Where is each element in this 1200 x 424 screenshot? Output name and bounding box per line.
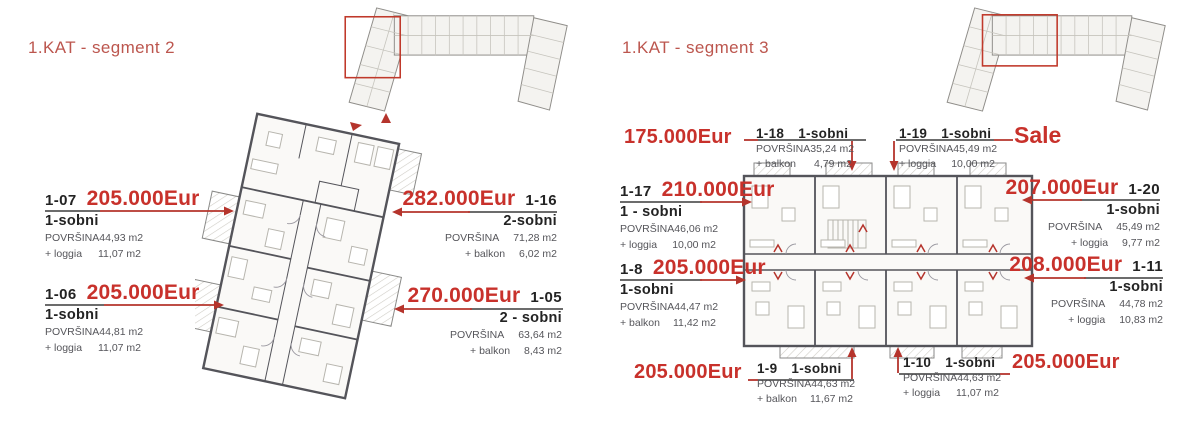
segment3-title: 1.KAT - segment 3 [622, 38, 769, 58]
balcony-bottom-1 [780, 346, 854, 358]
apartment-card-1-06: 1-06 205.000Eur 1-sobni POVRŠINA44,81 m2… [45, 281, 200, 355]
area-label: POVRŠINA [620, 301, 674, 314]
apartment-id: 1-06 [45, 286, 77, 303]
price-1-9: 205.000Eur [634, 361, 742, 384]
apartment-type: 1-sobni [791, 361, 841, 376]
apartment-id: 1-19 [899, 126, 927, 141]
extra-label: + loggia [903, 387, 940, 400]
apartment-id: 1-07 [45, 192, 77, 209]
extra-value: 11,07 m2 [956, 387, 999, 400]
apartment-id: 1-17 [620, 183, 652, 200]
area-label: POVRŠINA [450, 329, 504, 342]
area-label: POVRŠINA [445, 232, 499, 245]
segment3-overview-map [933, 4, 1198, 114]
extra-value: 10,00 m2 [672, 239, 716, 252]
area-label: POVRŠINA [45, 326, 99, 339]
segment2-title: 1.KAT - segment 2 [28, 38, 175, 58]
extra-value: 9,77 m2 [1122, 237, 1160, 250]
apartment-type: 1-sobni [45, 213, 200, 229]
apartment-id: 1-16 [525, 192, 557, 209]
segment3-floor-plan [738, 160, 1038, 360]
area-label: POVRŠINA [45, 232, 99, 245]
extra-value: 11,67 m2 [810, 393, 853, 406]
area-value: 71,28 m2 [513, 232, 557, 245]
apartment-card-1-8: 1-8 205.000Eur 1-sobni POVRŠINA44,47 m2 … [620, 256, 766, 330]
apartment-type: 1-sobni [45, 307, 200, 323]
apartment-id: 1-10 [903, 355, 931, 370]
area-value: 44,63 m2 [811, 378, 855, 391]
area-label: POVRŠINA [757, 378, 811, 391]
apartment-id: 1-8 [620, 261, 643, 278]
area-label: POVRŠINA [1051, 298, 1105, 311]
area-label: POVRŠINA [620, 223, 674, 236]
area-value: 44,93 m2 [99, 232, 143, 245]
area-value: 63,64 m2 [518, 329, 562, 342]
apartment-card-1-9: 1-9 1-sobni POVRŠINA44,63 m2 + balkon11,… [757, 361, 853, 406]
extra-value: 10,83 m2 [1119, 314, 1163, 327]
extra-label: + balkon [620, 317, 660, 330]
apartment-card-1-19: 1-19 1-sobni POVRŠINA45,49 m2 + loggia10… [899, 126, 995, 171]
area-value: 44,47 m2 [674, 301, 718, 314]
area-value: 44,78 m2 [1119, 298, 1163, 311]
apartment-price: 205.000Eur [87, 187, 200, 211]
extra-label: + balkon [465, 248, 505, 261]
apartment-price: 282.000Eur [402, 187, 515, 211]
floor-plan-page: 1.KAT - segment 2 1.KAT - segment 3 [0, 0, 1200, 424]
extra-value: 8,43 m2 [524, 345, 562, 358]
price-1-10: 205.000Eur [1012, 351, 1120, 374]
extra-value: 4,79 m2 [814, 158, 852, 171]
apartment-price: 207.000Eur [1005, 176, 1118, 200]
apartment-price: 205.000Eur [653, 256, 766, 280]
apartment-price: 208.000Eur [1009, 253, 1122, 277]
area-value: 44,81 m2 [99, 326, 143, 339]
area-value: 44,63 m2 [957, 372, 1001, 385]
extra-label: + loggia [1068, 314, 1105, 327]
area-value: 35,24 m2 [810, 143, 854, 156]
apartment-id: 1-9 [757, 361, 777, 376]
sale-badge-1-19: Sale [1014, 122, 1061, 149]
area-label: POVRŠINA [1048, 221, 1102, 234]
apartment-card-1-18: 1-18 1-sobni POVRŠINA35,24 m2 + balkon4,… [756, 126, 852, 171]
price-1-18: 175.000Eur [624, 126, 732, 149]
apartment-card-1-11: 208.000Eur 1-11 1-sobni POVRŠINA44,78 m2… [1003, 253, 1163, 327]
extra-label: + balkon [757, 393, 797, 406]
segment2-overview-map [335, 4, 600, 114]
apartment-type: 1-sobni [1003, 279, 1163, 295]
apartment-card-1-17: 1-17 210.000Eur 1 - sobni POVRŠINA46,06 … [620, 178, 775, 252]
extra-label: + loggia [620, 239, 657, 252]
extra-label: + balkon [756, 158, 796, 171]
area-value: 45,49 m2 [1116, 221, 1160, 234]
extra-label: + loggia [899, 158, 936, 171]
apartment-price: 270.000Eur [407, 284, 520, 308]
extra-value: 11,07 m2 [98, 248, 141, 261]
extra-value: 10,00 m2 [951, 158, 995, 171]
area-value: 46,06 m2 [674, 223, 718, 236]
apartment-type: 1-sobni [941, 126, 991, 141]
apartment-card-1-20: 207.000Eur 1-20 1-sobni POVRŠINA45,49 m2… [1000, 176, 1160, 250]
apartment-price: 210.000Eur [662, 178, 775, 202]
apartment-id: 1-20 [1128, 181, 1160, 198]
area-label: POVRŠINA [903, 372, 957, 385]
area-value: 45,49 m2 [953, 143, 997, 156]
apartment-price: 205.000Eur [87, 281, 200, 305]
area-label: POVRŠINA [756, 143, 810, 156]
apartment-id: 1-11 [1132, 258, 1163, 275]
apartment-card-1-07: 1-07 205.000Eur 1-sobni POVRŠINA44,93 m2… [45, 187, 200, 261]
extra-value: 11,07 m2 [98, 342, 141, 355]
extra-label: + loggia [1071, 237, 1108, 250]
apartment-type: 1-sobni [1000, 202, 1160, 218]
extra-value: 11,42 m2 [673, 317, 716, 330]
apartment-type: 2-sobni [398, 213, 557, 229]
extra-label: + loggia [45, 342, 82, 355]
apartment-card-1-16: 282.000Eur 1-16 2-sobni POVRŠINA71,28 m2… [398, 187, 557, 261]
apartment-card-1-05: 270.000Eur 1-05 2 - sobni POVRŠINA63,64 … [403, 284, 562, 358]
apartment-id: 1-18 [756, 126, 784, 141]
extra-value: 6,02 m2 [519, 248, 557, 261]
extra-label: + loggia [45, 248, 82, 261]
apartment-card-1-10: 1-10 1-sobni POVRŠINA44,63 m2 + loggia11… [903, 355, 999, 400]
apartment-type: 1 - sobni [620, 204, 775, 220]
apartment-type: 1-sobni [945, 355, 995, 370]
apartment-type: 2 - sobni [403, 310, 562, 326]
area-label: POVRŠINA [899, 143, 953, 156]
extra-label: + balkon [470, 345, 510, 358]
apartment-type: 1-sobni [620, 282, 766, 298]
apartment-type: 1-sobni [798, 126, 848, 141]
apartment-id: 1-05 [530, 289, 562, 306]
